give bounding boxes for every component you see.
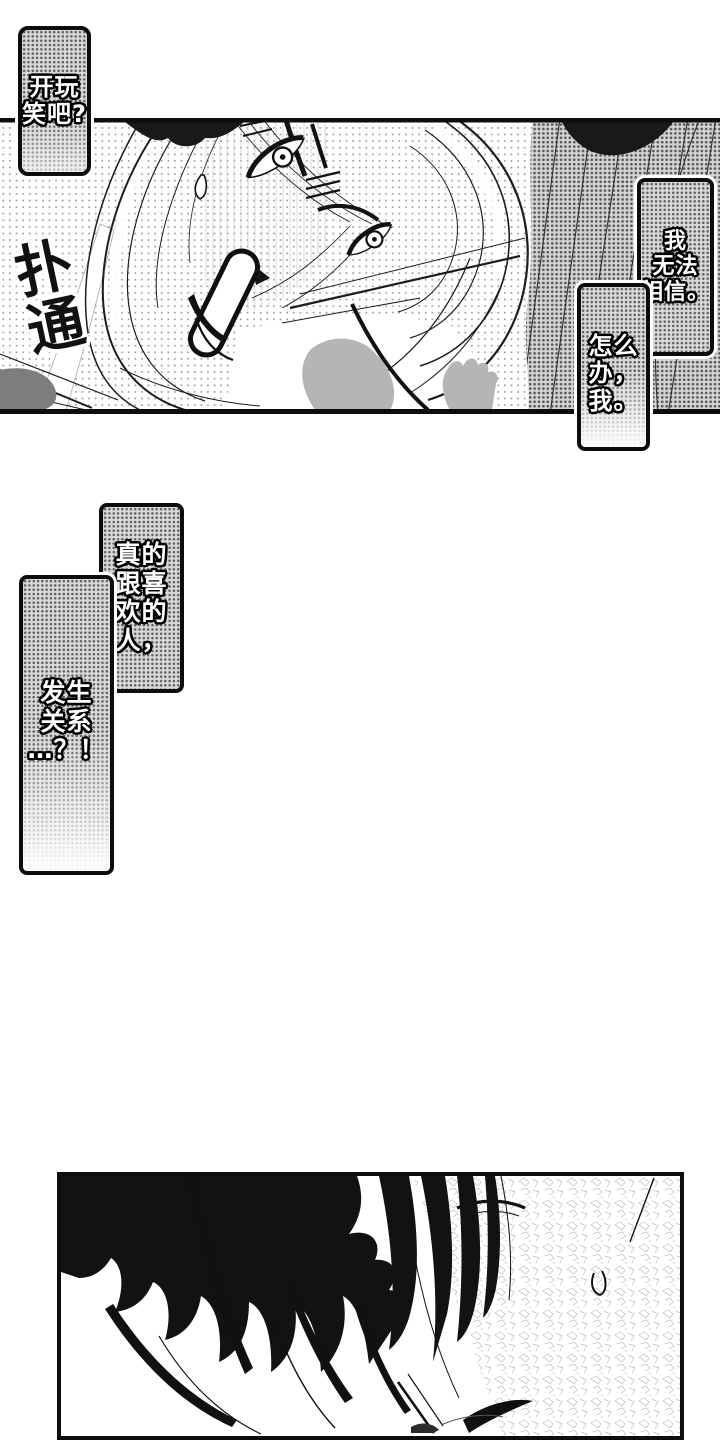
- speech-text: 我 无法 相信。: [641, 229, 710, 304]
- speech-text: 开玩 笑吧?: [22, 74, 87, 129]
- manga-page: { "colors": { "ink": "#111111", "paper":…: [0, 0, 720, 1440]
- speech-bubble-kidding: 开玩 笑吧?: [18, 26, 91, 176]
- panel-border-top: [0, 118, 720, 123]
- thought-box-really-lower: 发生 关系 …？！: [19, 575, 114, 875]
- speech-text: 发生 关系 …？！: [27, 679, 105, 765]
- thought-box-what-do: 怎么 办， 我。: [577, 283, 650, 451]
- panel-bottom-art: [61, 1176, 680, 1436]
- speech-text: 怎么 办， 我。: [589, 333, 639, 415]
- panel-bottom: [57, 1172, 684, 1440]
- speech-text: 真的 跟喜 欢的 人，: [115, 541, 167, 655]
